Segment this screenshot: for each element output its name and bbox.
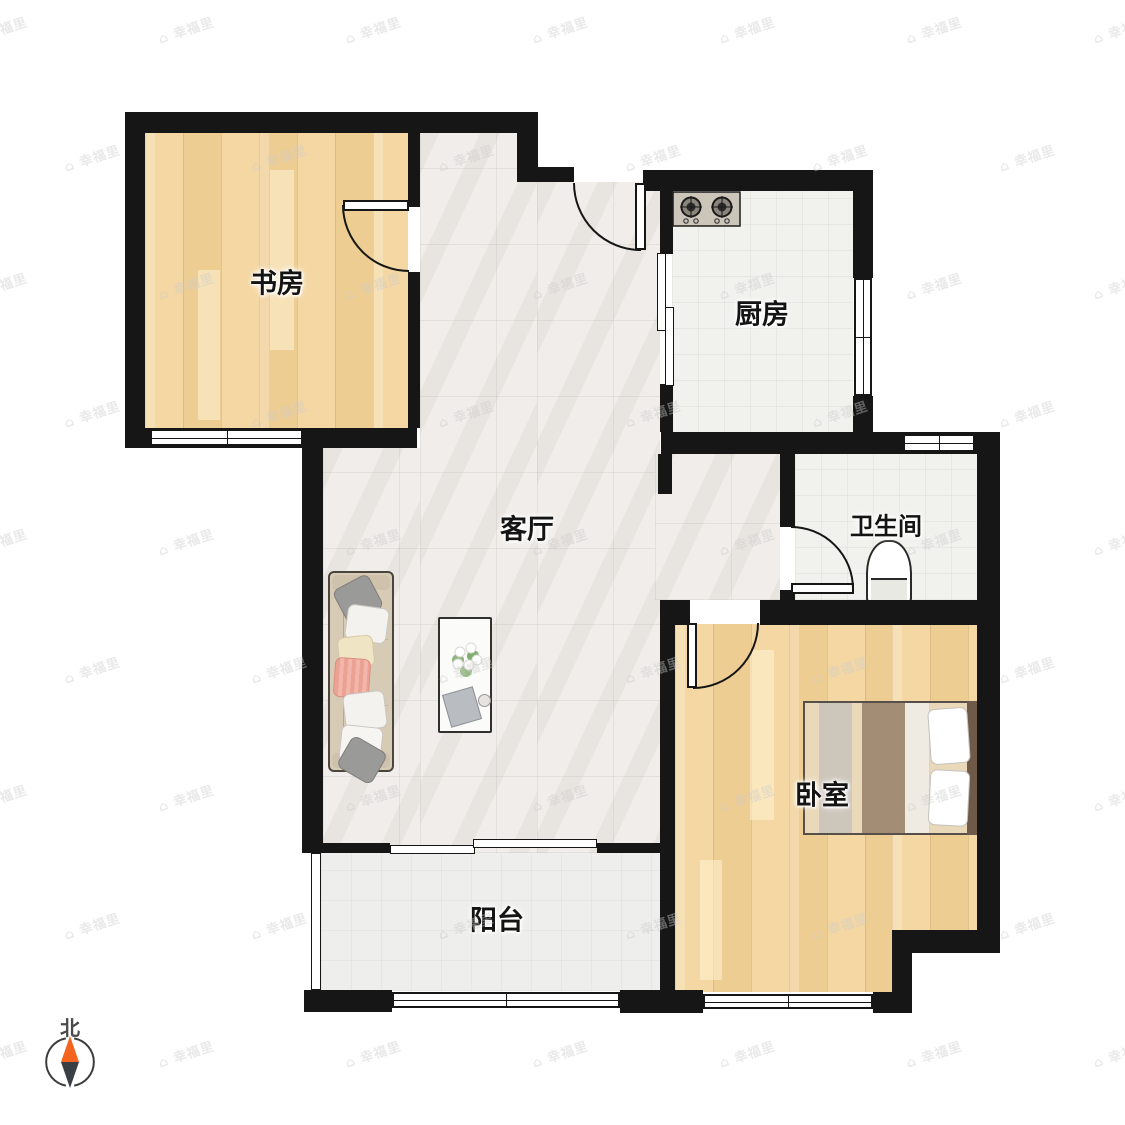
kitchen-sliding-door-panel [665, 307, 674, 386]
room-living-floor-b [537, 182, 660, 853]
watermark: ⌂ 幸福里 [0, 524, 29, 560]
balcony-sliding-door-panel [473, 839, 597, 848]
wall-segment [660, 190, 673, 254]
room-living-floor-d [655, 454, 780, 600]
watermark: ⌂ 幸福里 [61, 396, 122, 432]
compass-north-label: 北 [60, 1012, 80, 1041]
watermark: ⌂ 幸福里 [61, 652, 122, 688]
window-divider [856, 337, 870, 338]
study-door-leaf [343, 200, 409, 211]
compass [46, 1036, 94, 1088]
bed-sheet-light [905, 703, 930, 833]
coffee-table-cup [478, 694, 491, 707]
watermark: ⌂ 幸福里 [1090, 1036, 1125, 1072]
watermark: ⌂ 幸福里 [61, 908, 122, 944]
watermark: ⌂ 幸福里 [0, 780, 29, 816]
wall-segment [892, 953, 912, 1013]
watermark: ⌂ 幸福里 [248, 908, 309, 944]
bathroom-door-leaf [791, 583, 854, 594]
wall-segment [977, 432, 1000, 953]
window-divider [939, 436, 940, 450]
room-label-balcony: 阳台 [470, 899, 524, 938]
watermark: ⌂ 幸福里 [342, 12, 403, 48]
watermark: ⌂ 幸福里 [155, 524, 216, 560]
plank-highlight [750, 650, 774, 820]
watermark: ⌂ 幸福里 [903, 12, 964, 48]
watermark: ⌂ 幸福里 [155, 12, 216, 48]
wall-segment [780, 454, 795, 527]
watermark: ⌂ 幸福里 [529, 12, 590, 48]
wall-segment [304, 990, 392, 1012]
wall-segment [620, 990, 703, 1013]
bathroom-window [903, 434, 975, 452]
balcony-side-wall [311, 853, 321, 990]
wall-segment [408, 272, 420, 428]
window-divider [227, 431, 228, 444]
bed-blanket [862, 703, 905, 833]
wall-segment [537, 167, 574, 182]
wall-segment [660, 600, 675, 1012]
watermark: ⌂ 幸福里 [996, 140, 1057, 176]
wall-segment [125, 112, 145, 448]
watermark: ⌂ 幸福里 [996, 908, 1057, 944]
floor-plan: 书房 厨房 客厅 卫生间 卧室 阳台 北 ⌂ 幸福里⌂ 幸福里⌂ 幸福里⌂ 幸福… [0, 0, 1125, 1125]
watermark: ⌂ 幸福里 [1090, 524, 1125, 560]
wall-segment [760, 600, 1000, 625]
wall-segment [660, 384, 673, 432]
room-living-floor-a [420, 132, 537, 853]
watermark: ⌂ 幸福里 [248, 652, 309, 688]
room-label-study: 书房 [250, 262, 304, 301]
wall-segment [853, 190, 873, 278]
watermark: ⌂ 幸福里 [1090, 780, 1125, 816]
window-divider [506, 994, 507, 1006]
wall-segment [517, 112, 538, 182]
wall-segment [853, 396, 873, 434]
wall-segment [302, 448, 323, 853]
watermark: ⌂ 幸福里 [996, 652, 1057, 688]
watermark: ⌂ 幸福里 [0, 12, 29, 48]
watermark: ⌂ 幸福里 [155, 1036, 216, 1072]
watermark: ⌂ 幸福里 [0, 1036, 29, 1072]
wall-segment [408, 133, 420, 207]
watermark: ⌂ 幸福里 [1090, 12, 1125, 48]
watermark: ⌂ 幸福里 [716, 1036, 777, 1072]
plank-highlight [198, 270, 220, 420]
room-label-bathroom: 卫生间 [850, 507, 922, 542]
toilet [866, 540, 912, 604]
watermark: ⌂ 幸福里 [0, 268, 29, 304]
balcony-sliding-door-panel [390, 845, 475, 854]
wall-segment [597, 843, 660, 853]
watermark: ⌂ 幸福里 [342, 1036, 403, 1072]
wall-segment [643, 170, 873, 191]
window-divider [788, 996, 789, 1007]
bedroom-window [703, 994, 873, 1009]
watermark: ⌂ 幸福里 [996, 396, 1057, 432]
bed-pillow [928, 769, 971, 827]
watermark: ⌂ 幸福里 [61, 140, 122, 176]
compass-needle-south [61, 1062, 79, 1088]
study-window [150, 429, 303, 446]
room-label-living: 客厅 [500, 508, 554, 547]
wall-segment [125, 112, 517, 133]
watermark: ⌂ 幸福里 [155, 780, 216, 816]
bed [803, 701, 977, 835]
bed-sheet-stripe [819, 703, 852, 833]
plank-highlight [700, 860, 722, 980]
watermark: ⌂ 幸福里 [1090, 268, 1125, 304]
wall-segment [323, 843, 390, 853]
kitchen-window [854, 278, 872, 396]
toilet-seat [871, 578, 907, 600]
entry-door-leaf [635, 183, 646, 250]
watermark: ⌂ 幸福里 [716, 12, 777, 48]
room-label-kitchen: 厨房 [735, 293, 789, 332]
bedroom-door-leaf [687, 623, 697, 688]
plank-highlight [270, 170, 294, 350]
bed-pillow [927, 707, 971, 766]
watermark: ⌂ 幸福里 [529, 1036, 590, 1072]
wall-segment [658, 454, 672, 494]
watermark: ⌂ 幸福里 [903, 1036, 964, 1072]
watermark: ⌂ 幸福里 [903, 268, 964, 304]
balcony-window [392, 992, 620, 1008]
room-label-bedroom: 卧室 [795, 774, 849, 813]
